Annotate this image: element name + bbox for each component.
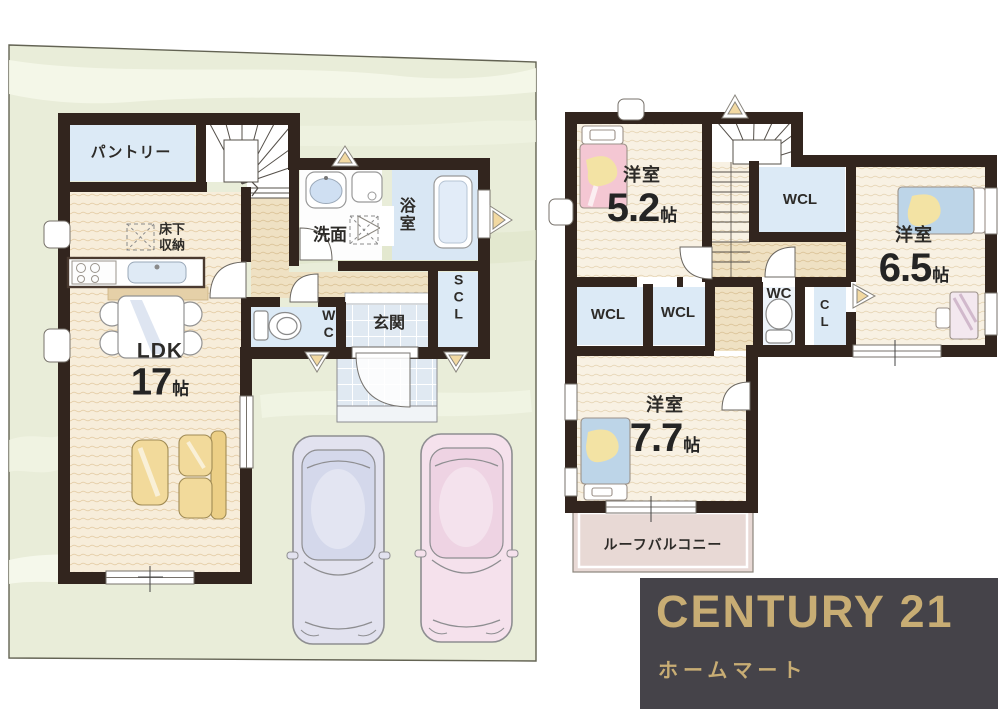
toilet-1f-icon <box>254 311 301 340</box>
bed-77-icon <box>581 418 630 500</box>
car-pink-icon <box>415 434 518 642</box>
label-wcl-mid: WCL <box>661 305 695 322</box>
bathtub-icon <box>434 176 472 248</box>
label-roof-balcony: ルーフバルコニー <box>604 537 723 552</box>
sink-icon <box>306 172 346 208</box>
label-wc-1f: WC <box>320 307 335 341</box>
store-name: ホームマート <box>658 654 807 683</box>
label-room77: 洋室 7.7帖 <box>630 396 701 460</box>
toilet-2f-icon <box>766 299 792 343</box>
label-room52: 洋室 5.2帖 <box>607 166 678 230</box>
label-room65: 洋室 6.5帖 <box>879 226 950 290</box>
brand-name: CENTURY 21 <box>656 586 954 638</box>
car-blue-icon <box>287 436 390 644</box>
label-wc-2f: WC <box>767 286 792 303</box>
label-washroom: 洗面 <box>313 227 347 246</box>
label-entrance: 玄関 <box>373 315 405 333</box>
label-wcl-left: WCL <box>591 307 625 324</box>
room77-size: 7.7帖 <box>630 416 701 460</box>
label-bath: 浴室 <box>396 197 414 233</box>
label-wcl-top: WCL <box>783 192 817 209</box>
century21-logo: CENTURY 21 ホームマート <box>640 578 998 709</box>
label-underfloor-storage: 床下 収納 <box>159 221 185 252</box>
room65-size: 6.5帖 <box>879 246 950 290</box>
floorplan-page: パントリー 洗面 浴室 床下 収納 LDK 17帖 WC 玄関 SCL 洋室 5… <box>0 0 1000 709</box>
label-cl: CL <box>817 297 831 331</box>
label-scl: SCL <box>450 272 465 323</box>
label-pantry: パントリー <box>91 145 172 162</box>
room52-size: 5.2帖 <box>607 186 678 230</box>
label-ldk: LDK 17帖 <box>131 340 189 405</box>
